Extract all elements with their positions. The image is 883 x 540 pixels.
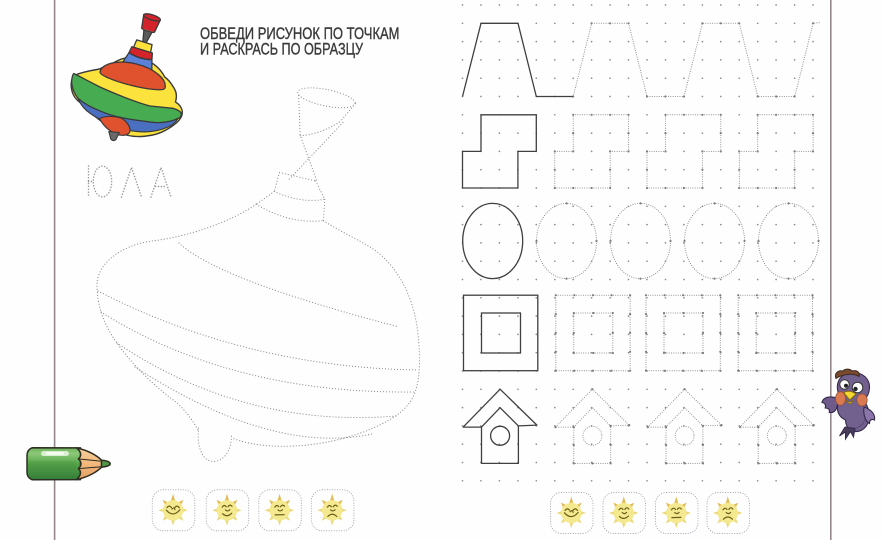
svg-text:И РАСКРАСЬ ПО ОБРАЗЦУ: И РАСКРАСЬ ПО ОБРАЗЦУ — [200, 41, 363, 59]
